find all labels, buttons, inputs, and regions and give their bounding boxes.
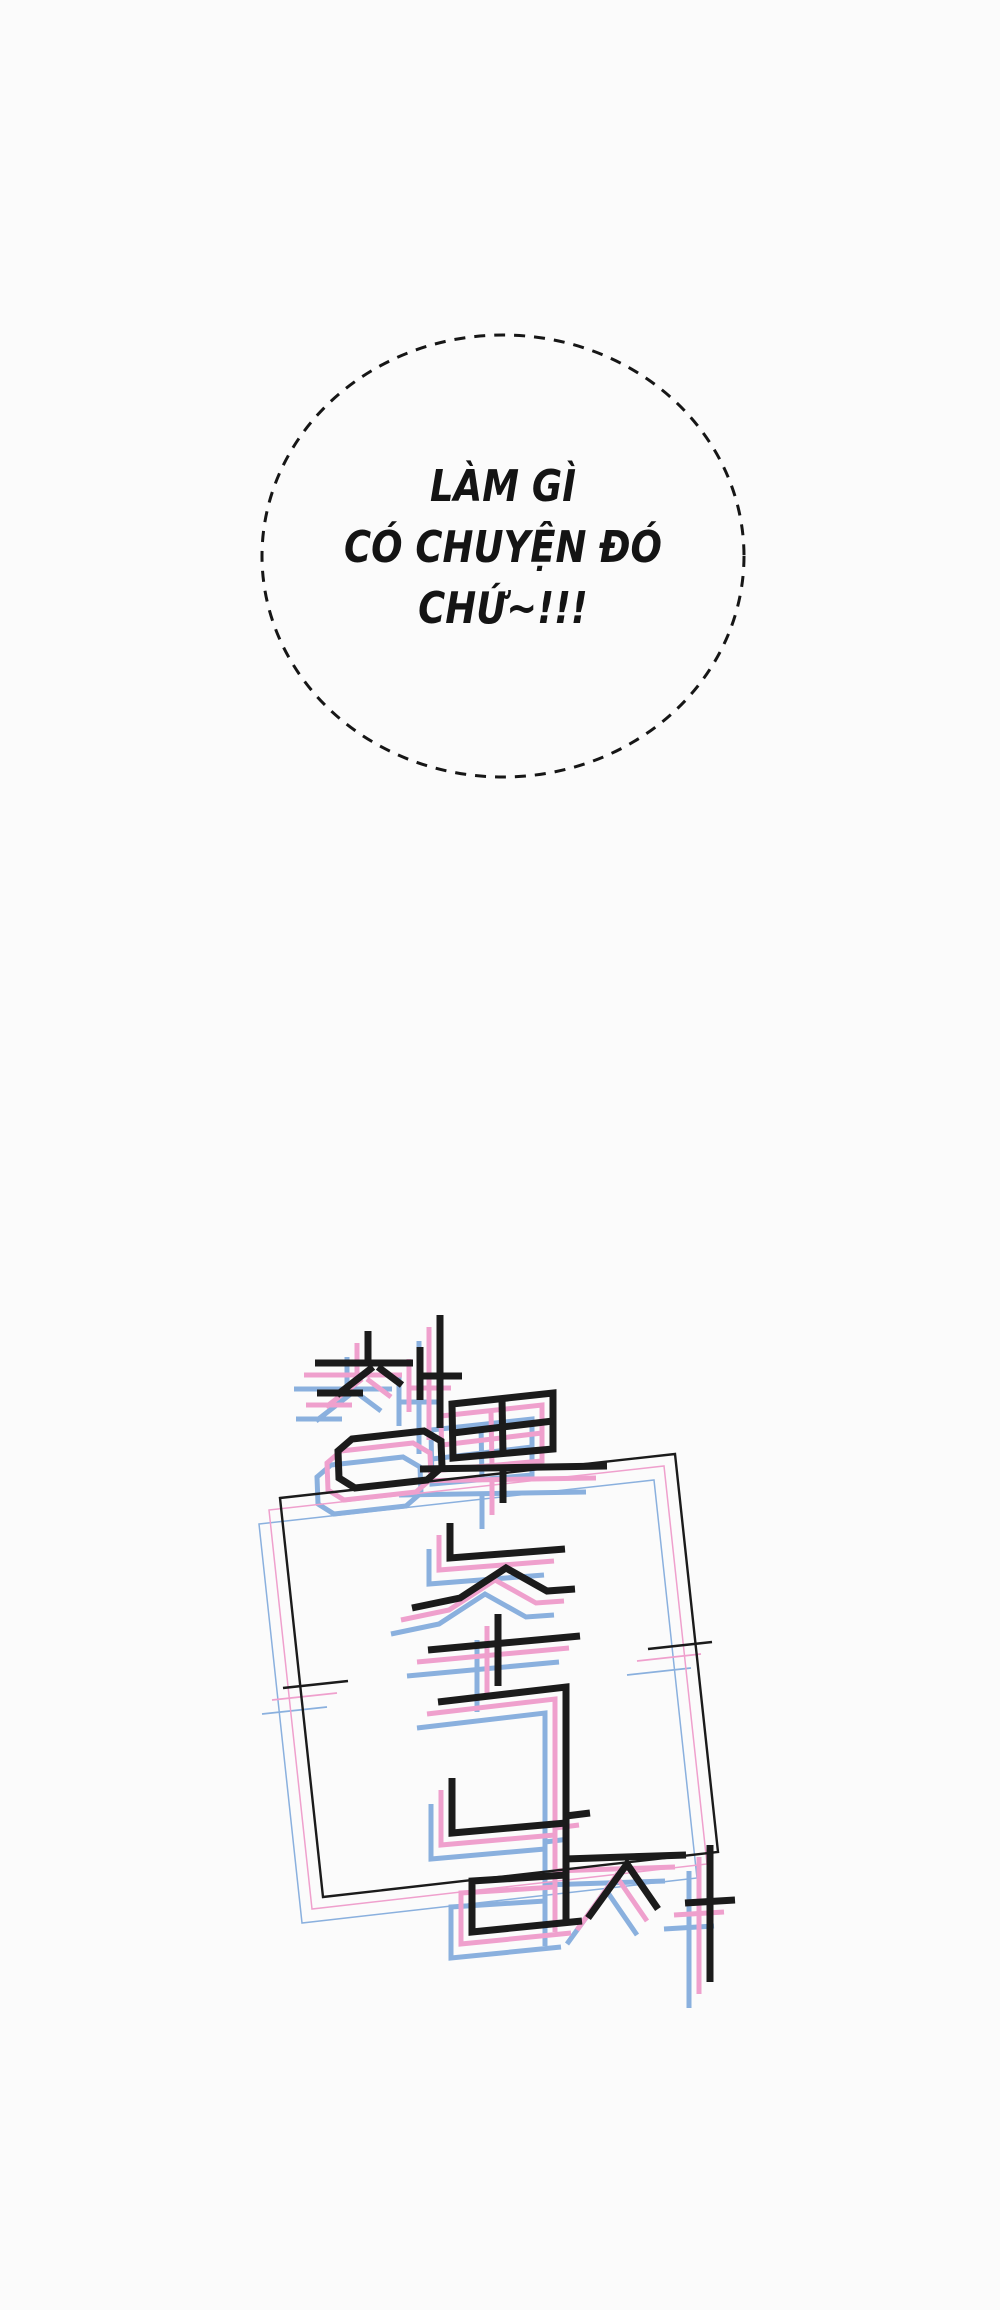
logo-stroke — [637, 1654, 701, 1661]
logo-stroke — [272, 1693, 337, 1700]
logo-stroke — [452, 1778, 566, 1833]
logo-stroke — [420, 1466, 607, 1469]
logo-stroke — [283, 1681, 348, 1688]
logo-stroke — [407, 1662, 559, 1676]
title-logo-art — [0, 0, 1000, 2310]
comic-page: LÀM GÌ CÓ CHUYỆN ĐÓ CHỨ~!!! — [0, 0, 1000, 2310]
logo-stroke — [450, 1523, 565, 1558]
logo-stroke — [441, 1790, 555, 1845]
logo-stroke — [648, 1642, 712, 1649]
logo-stroke — [262, 1707, 327, 1714]
logo-stroke — [566, 1813, 590, 1816]
logo-stroke — [674, 1912, 724, 1915]
logo-stroke — [685, 1900, 735, 1903]
logo-stroke — [588, 1864, 658, 1918]
logo-stroke — [627, 1668, 691, 1675]
